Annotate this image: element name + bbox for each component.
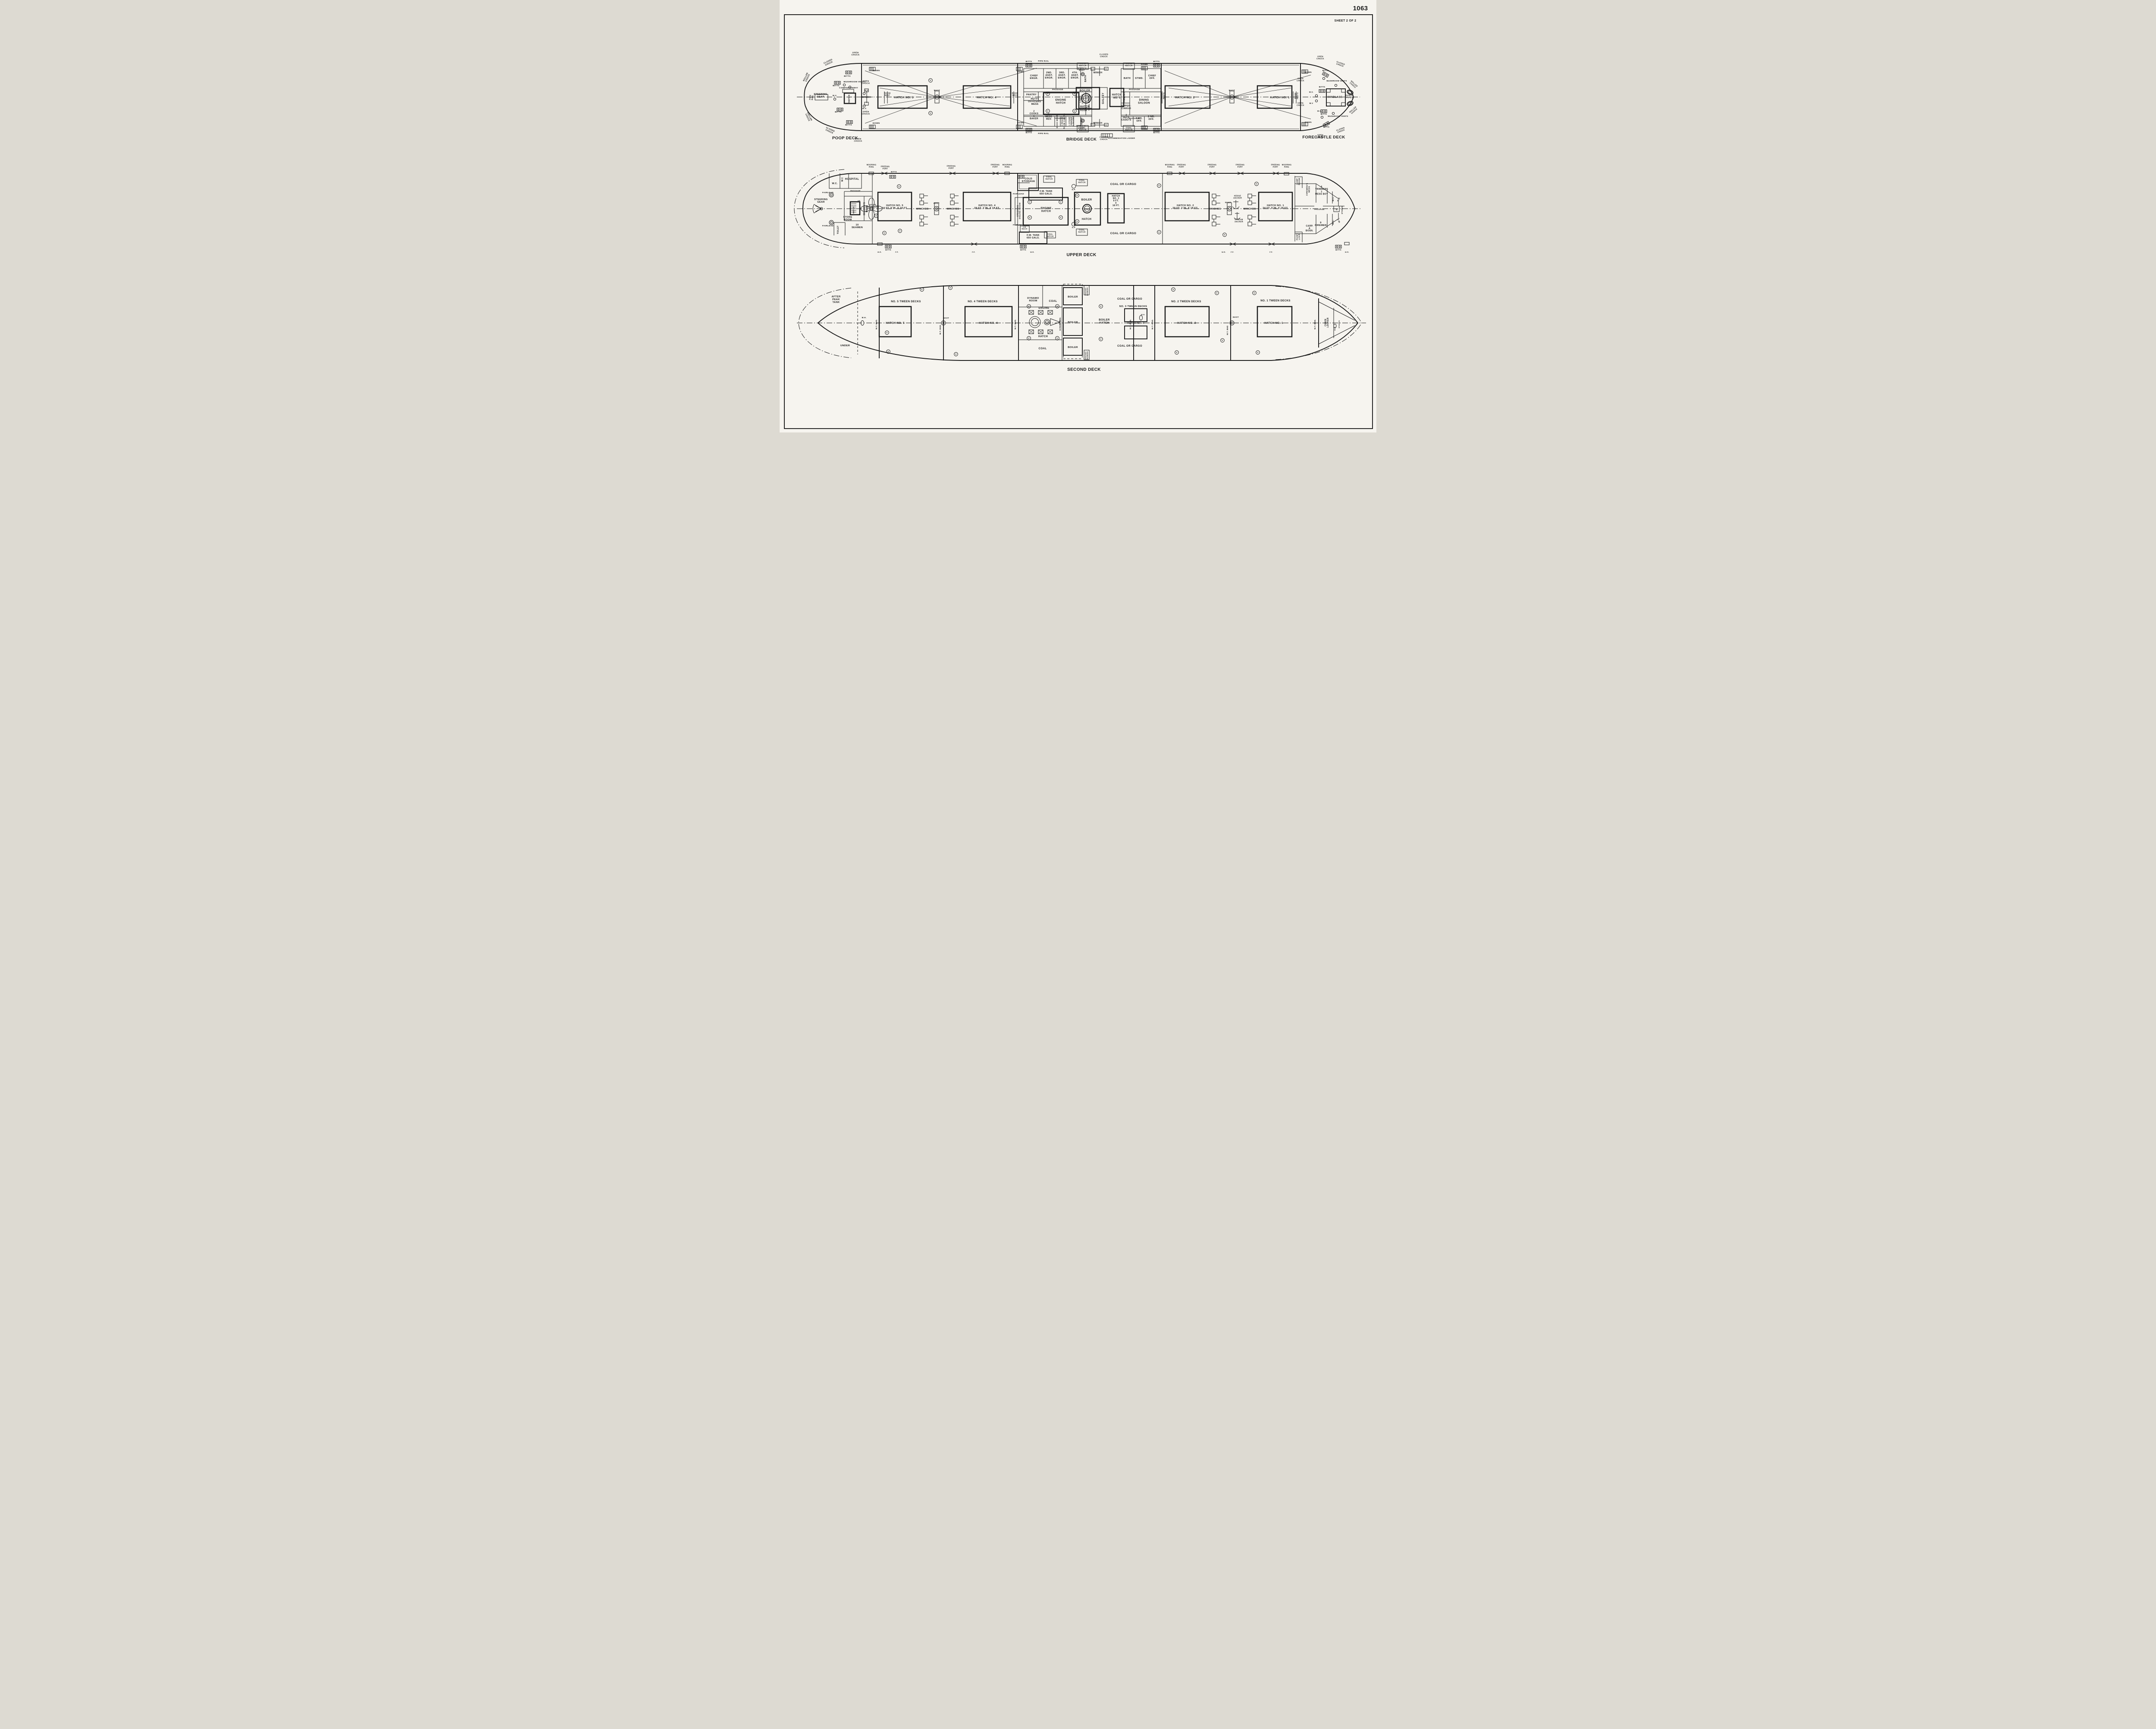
manhole-no3 — [1140, 316, 1143, 320]
plan-label: COAL — [1039, 347, 1047, 350]
plan-label: W.C — [1337, 197, 1341, 202]
plan-label: M.V. — [1309, 91, 1313, 93]
plan-label: BOILERHATCH — [1099, 319, 1110, 325]
vent-label: V — [886, 332, 888, 334]
deck-plans-canvas: 1063 SHEET 2 OF 2 — [780, 0, 1376, 432]
plan-label: DOWN — [1305, 121, 1312, 123]
deck-title-poop: POOP DECK — [832, 136, 858, 141]
plan-label: HATCH NO. 2 — [1175, 96, 1195, 99]
plan-label: SUPER-CARGO — [1122, 105, 1131, 110]
vent-label: V — [1100, 338, 1102, 340]
blueprint-sheet: 1063 SHEET 2 OF 2 — [780, 0, 1376, 432]
plan-label: DYNAMOROOM — [1027, 297, 1039, 302]
vent-label: V — [884, 232, 885, 234]
plan-label: WINCHES — [1209, 208, 1221, 210]
vent-label: V — [898, 185, 900, 188]
plan-label: 6TRIMMERS1MESS BOY — [1315, 186, 1328, 196]
vent-label: V — [1216, 292, 1218, 294]
vent-label: V — [1074, 93, 1075, 95]
plan-label: MAST — [934, 202, 940, 204]
plan-label: NO. 4 TWEEN DECKS — [968, 300, 998, 303]
plan-label: COALHATCH — [1078, 229, 1086, 233]
deck-upper-plan: MOORINGRINGFREEINGPORTBITTSFREEINGPORTFR… — [794, 164, 1362, 257]
plan-label: F.W. TANK650 GALS. — [1040, 190, 1053, 195]
sheet-number: 1063 — [1353, 5, 1368, 12]
plan-label: FAIRLEAD — [1013, 193, 1024, 195]
plan-label: HATCH NO. 124 FT. 9 IN. X 18 FT. — [1263, 204, 1288, 210]
plan-label: STEERINGENGINE ROOM — [1016, 203, 1021, 219]
plan-label: BITTS — [833, 85, 840, 87]
plan-label: FREEINGPORT — [991, 164, 1000, 168]
plan-label: PASSAGE — [850, 190, 861, 192]
plan-label: M.V. — [1317, 110, 1322, 112]
vent-label: V — [930, 79, 931, 81]
plan-label: STACK — [1083, 97, 1090, 100]
vent-label: V — [1074, 110, 1075, 112]
plan-label: W.C. — [1332, 196, 1335, 201]
vent-label: V — [1076, 194, 1078, 197]
plan-label: MOORINGRING — [1165, 164, 1175, 168]
plan-label: PASSAGE — [1129, 88, 1140, 91]
plan-label: COAL OR CARGO — [1110, 232, 1136, 235]
plan-label: HATCH NO. 229 FT. 3 IN. X 18 FT. — [1172, 204, 1198, 210]
vent-label: V — [950, 287, 951, 289]
plan-label: W.C — [1337, 218, 1341, 223]
labels-upper: MOORINGRINGFREEINGPORTBITTSFREEINGPORTFR… — [814, 164, 1349, 257]
plan-label: 2COOKS1BAKER — [1030, 110, 1039, 120]
plan-label: WINCH — [1094, 72, 1103, 74]
vent-label: V — [1256, 183, 1257, 185]
plan-label: HATCH NO. 524 FT. 9 IN. X 18 FT. — [882, 204, 908, 210]
vent-label: V — [1176, 351, 1178, 354]
plan-label: PIPE RAIL — [1038, 60, 1049, 62]
plan-label: COALHATCH — [1079, 63, 1087, 67]
plan-label: CHIEFOFF. — [1148, 75, 1156, 80]
plan-label: CLOSEDCHOCK — [824, 126, 835, 135]
plan-label: HATCH NO. 4 — [977, 96, 997, 99]
vent-label: V — [1060, 216, 1062, 219]
plan-label: OPENCHOCK — [862, 110, 870, 115]
plan-label: W.T. BHD — [1226, 326, 1228, 335]
plan-label: F.P. — [1231, 251, 1234, 253]
plan-label: HATCH NO. 5 — [886, 322, 905, 325]
plan-label: W.T. BHD. — [1014, 319, 1016, 329]
plan-label: BITTS — [835, 111, 842, 113]
stern-overhang-second — [799, 288, 851, 358]
plan-label: UP — [858, 200, 860, 202]
plan-label: HATCH NO. 5 — [894, 96, 914, 99]
plan-label: HATCH — [848, 95, 851, 103]
plan-label: FREEINGPORT — [1208, 164, 1217, 168]
plan-label: W.C. — [1332, 219, 1335, 225]
plan-label: BOILER — [1068, 321, 1078, 324]
plan-label: HATCH NO. 2 — [1177, 322, 1196, 325]
plan-label: W.R. — [1030, 251, 1034, 253]
plan-label: MAST — [1225, 201, 1231, 204]
plan-label: BOOMREST — [884, 92, 891, 97]
plan-label: HATCH — [852, 207, 855, 214]
vent-label: V — [1158, 185, 1160, 187]
plan-label: HATCHNO. 3 — [1112, 94, 1122, 100]
plan-label: STEERINGGEAR — [814, 93, 827, 98]
plan-label: DOWN — [1017, 122, 1024, 124]
plan-label: NO. 2 TWEEN DECKS — [1171, 300, 1201, 303]
plan-label: BITTS — [885, 249, 891, 251]
plan-label: NO. 1 TWEEN DECKS — [1260, 299, 1291, 302]
vent-label: V — [921, 288, 923, 291]
deck-second-plan: AFTERPEAKTANKUNDERM.H.W.T. BHD.NO. 5 TWE… — [797, 284, 1366, 372]
plan-label: MAST — [1233, 316, 1239, 318]
plan-label: ROLLERCHOCK — [1349, 106, 1358, 115]
plan-label: CHAINLOCKER — [1324, 317, 1329, 327]
plan-label: BITTS — [1020, 249, 1026, 251]
vent-label: V — [1047, 93, 1049, 95]
plan-label: ENGINEHATCH — [1040, 207, 1051, 213]
vent-label: V — [1172, 288, 1174, 291]
plan-label: COALHATCH — [1047, 233, 1054, 238]
plan-label: MOORINGRING — [867, 164, 876, 168]
plan-label: PASSAGE — [1052, 88, 1063, 91]
vent-label: V — [1047, 110, 1049, 112]
plan-label: W.C — [841, 177, 844, 182]
vent-label: V — [1222, 339, 1223, 341]
plan-label: MAST — [943, 317, 949, 319]
plan-label: COAL — [1049, 300, 1057, 303]
plan-label: CHIEFENGR. — [1030, 75, 1038, 80]
plan-label: FIREMEN'SMESS — [1306, 183, 1310, 196]
plan-label: PETTYOFFICERS'MESS — [1028, 98, 1042, 106]
plan-label: F.P. — [1269, 251, 1273, 253]
plan-label: OPENCHOCK — [851, 51, 860, 56]
deck-title-upper: UPPER DECK — [1066, 253, 1096, 257]
plan-label: 4TH.ASST.ENGR. — [1071, 72, 1079, 79]
plan-label: COAL OR CARGO — [1110, 183, 1136, 186]
kedge-anchor-icon — [1232, 200, 1239, 209]
plan-label: HATCH NO. 4 — [979, 322, 998, 325]
plan-label: COAL OR CARGO — [1117, 345, 1142, 348]
plan-label: BOOMRESTS — [1161, 92, 1165, 99]
vent-label: V — [899, 230, 901, 232]
plan-label: ROLLERCHOCK — [1349, 80, 1358, 89]
plan-label: FREEINGPORT — [1236, 164, 1245, 168]
vent-label: V — [1224, 234, 1225, 236]
plan-label: FREEINGPORT — [881, 166, 890, 170]
plan-label: COALHATCH — [1125, 127, 1133, 131]
plan-label: AFTERPEAKTANK — [831, 296, 841, 304]
engine-drawing — [1029, 310, 1060, 334]
vent-label: V — [1029, 216, 1031, 219]
plan-label: MAST — [1229, 89, 1235, 91]
plan-label: POCKETBUNKER — [1084, 351, 1088, 360]
plan-label: CARP.&BOSN. — [1306, 225, 1313, 232]
plan-label: F.W. TANK650 GALS. — [1027, 234, 1040, 239]
plan-label: BOILER — [1068, 296, 1078, 298]
plan-label: 2ND.ASST.ENGR. — [1045, 72, 1053, 79]
plan-label: BITTS — [845, 124, 852, 126]
vent-label: V — [1028, 337, 1030, 339]
plan-label: M.H. — [1141, 313, 1145, 316]
vent-label: V — [1257, 351, 1259, 354]
plan-label: DECK ENGR. — [1056, 114, 1058, 128]
plan-label: COAL OR CARGO — [1117, 298, 1142, 301]
plan-label: M.V. — [865, 89, 869, 91]
plan-label: DOWN — [1305, 71, 1312, 73]
plan-label: HOSPITAL — [845, 178, 859, 181]
plan-label: 1 STOREKEEPER3 OILERS — [1068, 116, 1074, 126]
plan-label: MOORINGRING — [1003, 164, 1012, 168]
plan-label: BATH — [1124, 77, 1131, 80]
plan-label: BITTS — [1335, 249, 1341, 251]
plan-label: CLOSEDCHOCK — [1336, 126, 1346, 133]
vent-label: V — [1076, 220, 1078, 222]
plan-label: STREAMANCHOR — [1235, 219, 1243, 223]
plan-label: M.R. — [1345, 251, 1349, 253]
plan-label: BITTS — [1319, 86, 1325, 88]
plan-label: 10SEAMEN — [852, 224, 863, 229]
plan-label: DOWN — [1141, 128, 1148, 130]
plan-label: ENGINE — [1038, 307, 1049, 310]
plan-label: COALHATCH — [1078, 179, 1086, 184]
hatch-no3-aft-second — [1125, 326, 1147, 339]
vent-label: V — [1056, 337, 1058, 339]
plan-label: FAIRLEAD — [822, 225, 834, 227]
plan-label: M.V — [1310, 102, 1313, 104]
plan-label: FREEINGPORT — [947, 165, 956, 169]
plan-label: ICEMACH — [1022, 226, 1027, 230]
plan-label: WINDLASS — [1328, 96, 1343, 99]
vent-label: V — [1056, 305, 1058, 307]
plan-label: BITTS — [1322, 69, 1329, 72]
plan-label: MUSHROOM VENTS — [1328, 115, 1348, 117]
plan-label: HATCH NO. 1 — [1270, 96, 1290, 99]
plan-label: BATH — [1084, 75, 1087, 82]
plan-label: BATH — [1081, 118, 1083, 125]
deck-top-plan: OPENCHOCKCLOSEDCHOCKROLLERCHOCKPIPERAILR… — [797, 51, 1360, 142]
plan-label: BOILER — [1081, 199, 1092, 201]
vent-label: V — [887, 351, 889, 353]
plan-label: KEDGEANCHOR — [1233, 195, 1242, 199]
vent-label: V — [1158, 231, 1160, 233]
deck-title-forecastle: FORECASTLE DECK — [1302, 135, 1345, 140]
plan-label: MUSHROOM VENTS — [1326, 80, 1347, 82]
plan-label: BITTS — [1321, 113, 1327, 115]
plan-label: 9FIREMEN — [1315, 222, 1327, 227]
plan-label: M.H. — [862, 316, 867, 319]
plan-label: PASSAGE — [1314, 208, 1325, 210]
plan-label: D.P — [1072, 226, 1075, 229]
plan-label: WINCHES — [1244, 208, 1256, 210]
plan-label: CLOSEDCHOCK — [1100, 53, 1108, 58]
plan-label: HATCH NO. 429 FT. 3 IN. X 18 FT. — [974, 204, 1000, 210]
plan-label: HATCHNO. 39 FT.X18 FT. — [1112, 195, 1120, 207]
plan-label: BITTS — [1026, 132, 1032, 134]
deck-title-bridge: BRIDGE DECK — [1066, 137, 1097, 142]
plan-label: M.V. — [833, 94, 837, 97]
plan-label: 3 RD.OFF. — [1136, 117, 1143, 122]
vent-label: V — [1060, 201, 1062, 203]
plan-label: WINCHES — [947, 208, 959, 210]
plan-label: H — [1336, 209, 1338, 211]
plan-label: STACK — [1084, 208, 1091, 210]
plan-label: BITTS — [1026, 60, 1032, 63]
plan-label: PANTRY — [1123, 92, 1126, 102]
plan-label: DERRICKPOST — [1077, 67, 1087, 72]
plan-label: TOILET — [837, 226, 840, 234]
plan-label: STWD. — [1135, 77, 1144, 80]
plan-label: ACCOMMODATION LADDER — [1108, 137, 1135, 139]
plan-label: M.V. — [862, 107, 867, 110]
labels-second: AFTERPEAKTANKUNDERM.H.W.T. BHD.NO. 5 TWE… — [831, 286, 1340, 372]
plan-label: STORES — [1341, 206, 1343, 214]
plan-label: SEAMEN'SMESS — [863, 202, 868, 216]
plan-label: W.C. — [832, 182, 837, 185]
plan-label: BOILER — [1068, 346, 1078, 349]
vent-label: V — [1028, 305, 1030, 307]
plan-label: CLOSEDCHOCK — [1335, 60, 1345, 67]
plan-label: COMPANIONWAY — [839, 87, 859, 89]
sheet-label: SHEET 2 OF 2 — [1335, 19, 1357, 22]
plan-label: BITTS — [844, 75, 851, 78]
deck-title-second: SECOND DECK — [1067, 367, 1101, 372]
plan-label: ENGINEHATCH — [1055, 99, 1066, 105]
plan-label: DOWN — [873, 122, 880, 125]
plan-label: STEERINGGEAR — [814, 198, 827, 204]
plan-label: DOWN — [1141, 63, 1148, 66]
plan-label: DOWN — [1017, 71, 1024, 73]
plan-label: HATCH — [1082, 218, 1091, 221]
plan-label: OPENCHOCK — [1297, 78, 1304, 82]
vent-label: V — [955, 353, 957, 355]
plan-label: OPENCHOCK — [862, 80, 870, 85]
plan-label: W.T. BHD. — [1314, 319, 1316, 329]
plan-label: FAIRLEAD — [822, 191, 834, 194]
plan-label: GALLEY — [1102, 93, 1105, 104]
plan-label: FREEINGPORT — [1177, 164, 1186, 168]
vent-label: V — [930, 112, 931, 114]
plan-label: WINCH — [1094, 122, 1103, 125]
plan-label: F.P. — [895, 251, 899, 253]
plan-label: M.H. — [1334, 326, 1336, 330]
plan-label: HATCH — [1080, 106, 1090, 108]
plan-label: NO. 5 TWEEN DECKS — [891, 300, 921, 303]
plan-label: PAINTLCKR — [1296, 233, 1300, 240]
plan-label: DOWN — [873, 69, 880, 72]
plan-label: F.P. — [972, 251, 975, 253]
plan-label: 2 ND.OFF. — [1148, 116, 1155, 121]
plan-label: HAWSEPIPES — [1346, 94, 1354, 98]
vent-label: V — [1253, 292, 1255, 294]
plan-label: D.P. — [1072, 188, 1076, 191]
plan-label: HATCH NO. 3 — [1127, 322, 1144, 325]
vent-label: V — [1100, 305, 1102, 307]
plan-label: ROLLERCHOCK — [804, 112, 813, 122]
plan-label: W.T. BHD. — [875, 319, 877, 329]
plan-label: MOORINGRING — [1282, 164, 1291, 168]
plan-label: DININGSALOON — [1138, 99, 1150, 105]
plan-label: CLOSEDCHOCK — [1100, 136, 1108, 141]
plan-label: BOOMRESTS — [1294, 92, 1299, 99]
plan-label: W.R. — [1222, 251, 1226, 253]
plan-label: BITTS — [891, 171, 897, 173]
plan-label: NO. 3 TWEEN DECKS — [1119, 305, 1147, 308]
plan-label: LAMPROOM — [1296, 178, 1300, 185]
plan-label: BITTS — [1323, 126, 1329, 128]
plan-label: OPENCHOCK — [1297, 102, 1304, 106]
plan-label: W.T. BHD. — [1151, 319, 1153, 329]
plan-label: M.R. — [877, 251, 882, 253]
plan-label: BITTS — [1153, 60, 1160, 63]
plan-label: STOREROOM — [843, 216, 852, 221]
plan-label: BOILER — [1080, 90, 1091, 92]
plan-label: WINCHES — [916, 208, 929, 210]
plan-label: FREEINGPORT — [1271, 164, 1280, 168]
plan-label: CLOSEDCHOCK — [823, 58, 834, 67]
plan-label: HATCH NO. 1 — [1264, 322, 1283, 325]
plan-label: W.T. BHD. — [939, 324, 941, 335]
plan-label: UNDER — [840, 345, 850, 347]
plan-label: PANTRY — [1026, 94, 1037, 96]
plan-label: COALHATCH — [1046, 176, 1053, 180]
plan-label: ROLLERCHOCK — [802, 72, 811, 83]
plan-label: HATCH — [1038, 335, 1048, 338]
vent-label: V — [875, 215, 877, 217]
plan-label: MAST — [934, 89, 940, 91]
edge-fittings-upper — [869, 172, 1349, 248]
plan-label: BITTS — [1153, 132, 1160, 134]
vent-label: V — [1029, 201, 1031, 203]
plan-label: SCREEN BHD. — [1059, 317, 1061, 331]
plan-label: BOOMREST — [1012, 92, 1018, 97]
plan-label: STORES — [1338, 320, 1340, 328]
plan-label: PIPE RAIL — [1038, 132, 1049, 135]
plan-label: COALHATCH — [1125, 63, 1133, 67]
plan-label: 3 ENGINEROOM CADETS — [1061, 113, 1065, 129]
plan-label: OPENCHOCK — [1316, 56, 1324, 60]
plan-label: 3RD.ASST.ENGR. — [1058, 72, 1066, 79]
plan-label: POCKETBUNKER — [1084, 288, 1088, 296]
plan-label: WINCH — [862, 96, 871, 99]
